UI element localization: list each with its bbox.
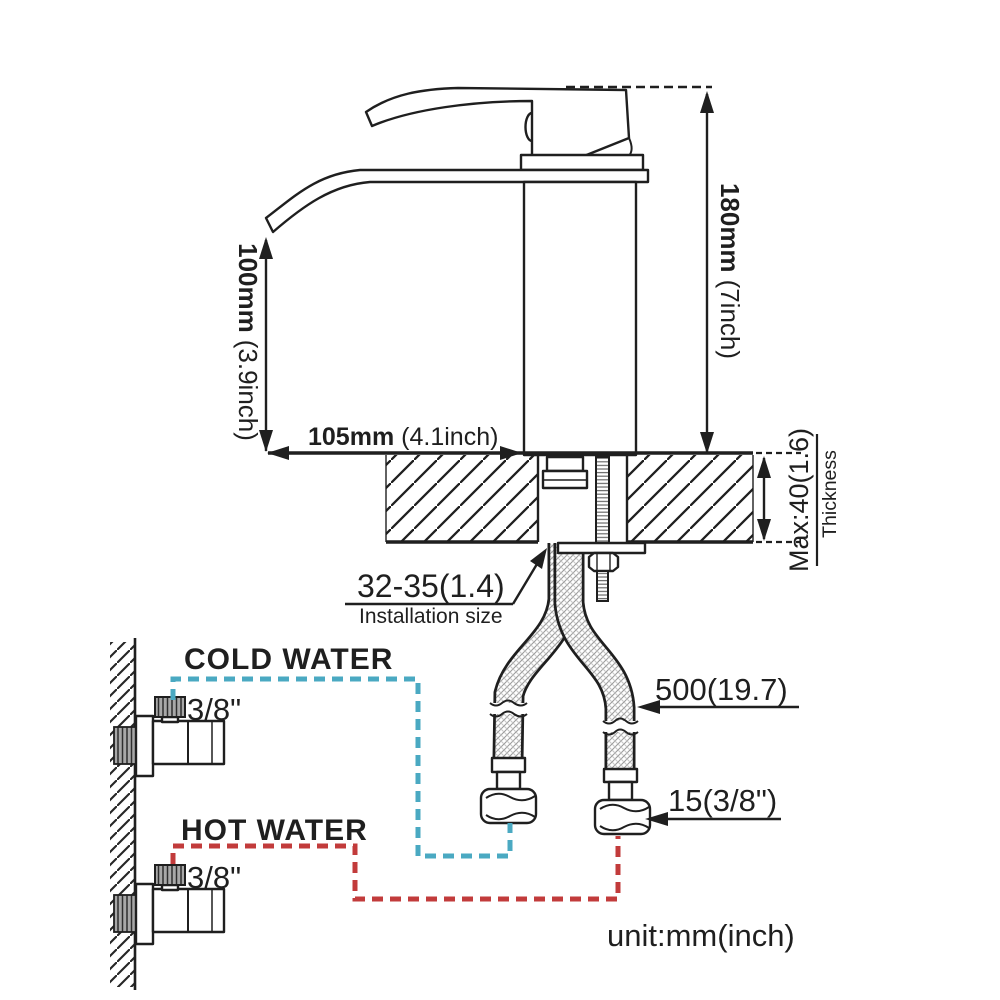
arrowhead-left bbox=[267, 446, 289, 460]
valve-knob bbox=[155, 697, 185, 717]
wall-section bbox=[110, 638, 135, 990]
valve-knob bbox=[155, 865, 185, 885]
cold-valve-size: 3/8" bbox=[187, 692, 241, 727]
hose-connector-value: 15(3/8") bbox=[668, 783, 777, 818]
mounting-washer bbox=[558, 543, 645, 553]
dim-thickness-caption: Thickness bbox=[819, 450, 841, 538]
valve-wall-pipe bbox=[114, 727, 136, 764]
hose-length-value: 500(19.7) bbox=[655, 672, 788, 707]
cold-water-label: COLD WATER bbox=[184, 643, 393, 676]
mounting-stud-lower bbox=[597, 571, 608, 601]
arrowhead bbox=[530, 548, 547, 569]
countertop-cross-section bbox=[386, 453, 801, 542]
diagram-canvas: 180mm(7inch) 100mm(3.9inch) 105mm(4.1inc… bbox=[0, 0, 1000, 1000]
hose-right-collar bbox=[604, 769, 637, 782]
unit-note: unit:mm(inch) bbox=[607, 918, 795, 953]
wall-hatch bbox=[110, 642, 135, 987]
handle-base-plate bbox=[521, 155, 643, 170]
arrowhead-left bbox=[637, 700, 660, 714]
leader-line bbox=[513, 559, 540, 604]
shank-fitting-top bbox=[547, 457, 583, 471]
dim-reach: 105mm(4.1inch) bbox=[267, 423, 753, 460]
mounting-stud-upper bbox=[596, 457, 609, 544]
dim-thickness: Max:40(1.6) Thickness bbox=[757, 428, 841, 572]
dim-thickness-label: Max:40(1.6) bbox=[784, 428, 814, 572]
arrowhead-up bbox=[757, 456, 771, 478]
arrowhead-down bbox=[757, 519, 771, 541]
hot-valve-size: 3/8" bbox=[187, 860, 241, 895]
hose-left-neck bbox=[497, 772, 520, 789]
countertop-right bbox=[628, 455, 753, 541]
valve-flange bbox=[136, 884, 153, 944]
hose-left-collar bbox=[492, 758, 525, 772]
faucet-column bbox=[524, 182, 636, 455]
handle-back-edge bbox=[629, 138, 632, 156]
installation-caption: Installation size bbox=[359, 605, 503, 628]
label-installation-size: 32-35(1.4) Installation size bbox=[345, 548, 547, 628]
label-hose-length: 500(19.7) bbox=[637, 672, 799, 714]
dim-spout-height: 100mm(3.9inch) bbox=[233, 237, 273, 452]
installation-value: 32-35(1.4) bbox=[357, 568, 505, 604]
faucet-installation-diagram: 180mm(7inch) 100mm(3.9inch) 105mm(4.1inc… bbox=[0, 0, 1000, 1000]
hose-right-neck bbox=[609, 782, 632, 800]
arrowhead-down bbox=[700, 432, 714, 454]
faucet-side-view bbox=[266, 88, 648, 455]
countertop-left bbox=[386, 455, 537, 541]
label-hose-connector: 15(3/8") bbox=[645, 783, 781, 826]
dim-spout-height-label: 100mm(3.9inch) bbox=[233, 243, 263, 441]
valve-flange bbox=[136, 716, 153, 776]
arrowhead-up bbox=[700, 91, 714, 113]
faucet-handle bbox=[366, 88, 629, 156]
dim-height-label: 180mm(7inch) bbox=[715, 183, 745, 359]
hot-water-label: HOT WATER bbox=[181, 814, 368, 847]
dim-reach-label: 105mm(4.1inch) bbox=[308, 423, 498, 451]
valve-wall-pipe bbox=[114, 895, 136, 932]
mounting-nut bbox=[589, 553, 618, 571]
